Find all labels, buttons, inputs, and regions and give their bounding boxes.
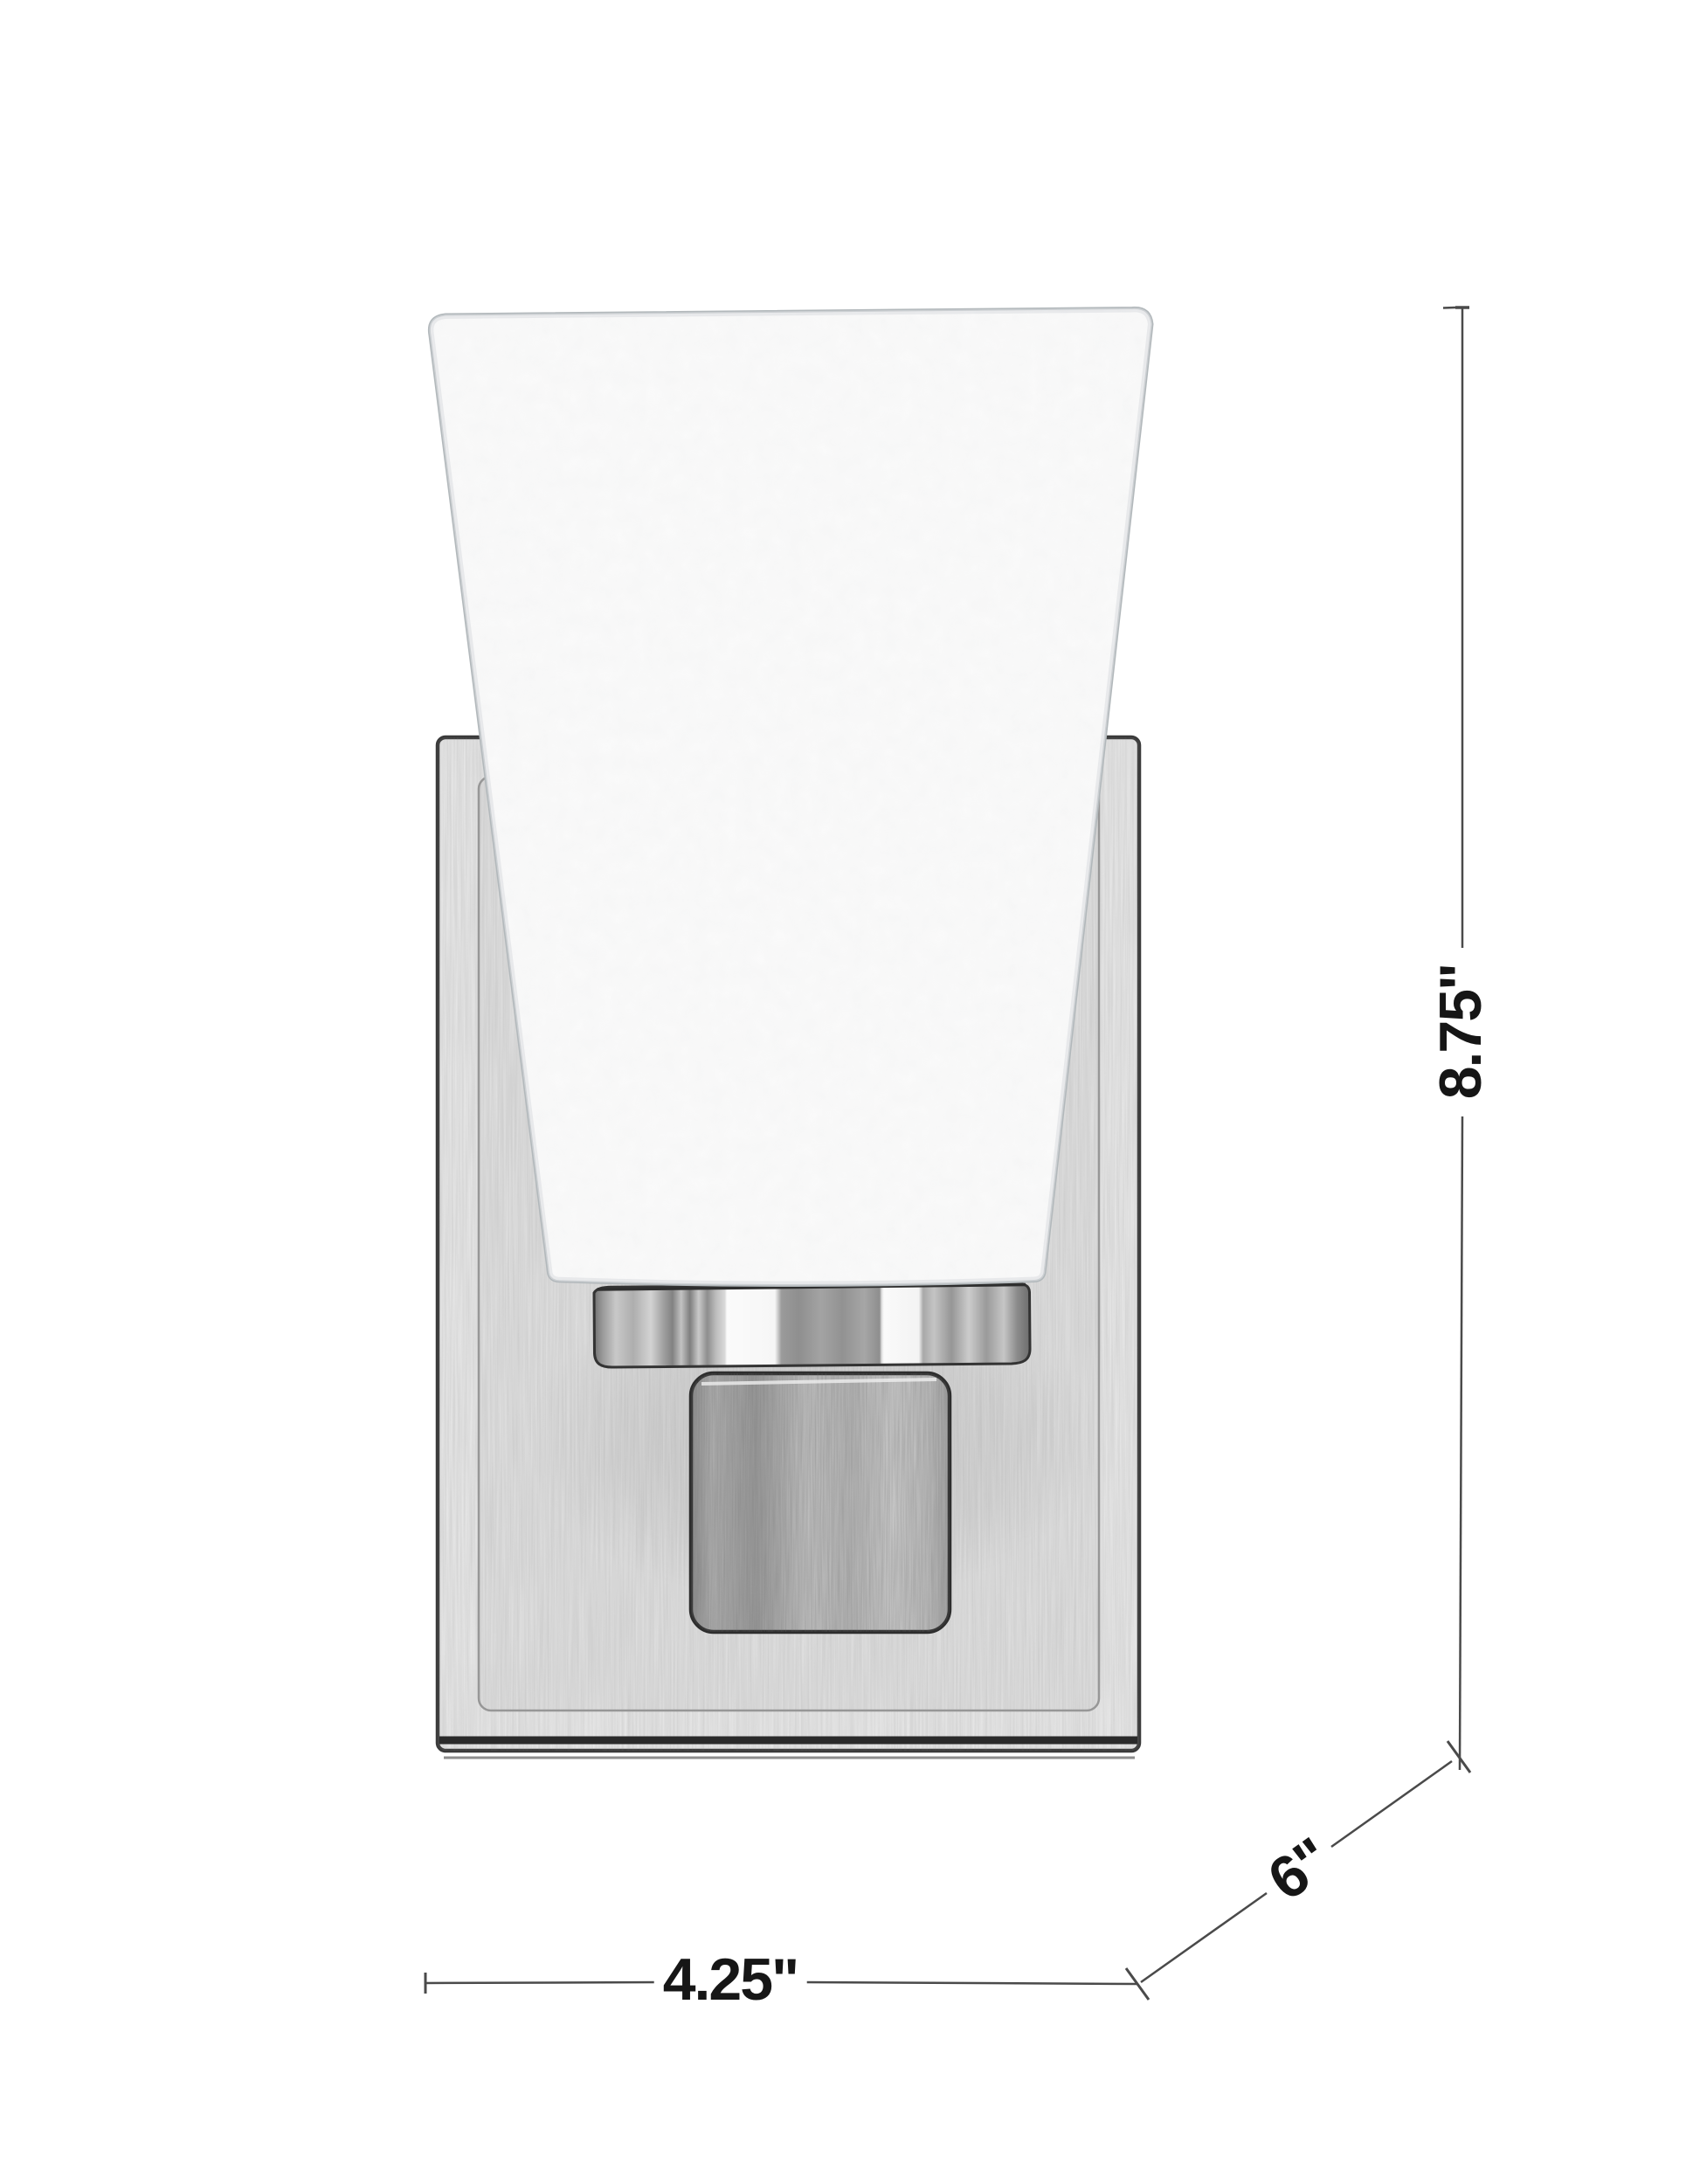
diagram-canvas: 8.75" 6" 4.25" — [0, 0, 1686, 2184]
height-dimension-label: 8.75" — [1431, 956, 1490, 1109]
height-top-tick-ext — [1443, 308, 1455, 308]
mounting-block — [691, 1373, 950, 1632]
socket-band — [594, 1283, 1030, 1367]
glass-shade — [419, 297, 1162, 1293]
width-dimension-label: 4.25" — [654, 1950, 807, 2009]
mounting-block-brushed-texture — [691, 1373, 950, 1632]
